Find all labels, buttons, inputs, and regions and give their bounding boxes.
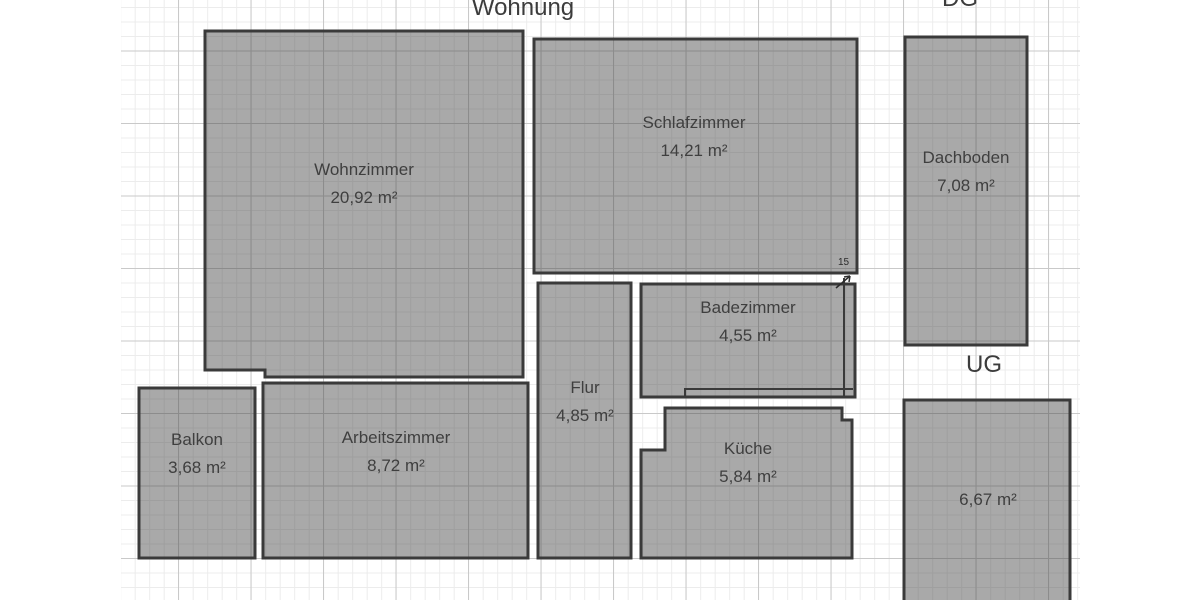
room-label-badezimmer: Badezimmer 4,55 m² — [648, 294, 848, 350]
room-area: 8,72 m² — [296, 452, 496, 480]
floor-title-ug: UG — [934, 352, 1034, 378]
floor-title-wohnung: Wohnung — [423, 0, 623, 21]
room-label-schlafzimmer: Schlafzimmer 14,21 m² — [594, 109, 794, 165]
room-label-ug: 6,67 m² — [918, 486, 1058, 514]
floorplan-stage: Wohnung DG UG Wohnzimmer 20,92 m² Schlaf… — [0, 0, 1200, 600]
room-area: 4,55 m² — [648, 322, 848, 350]
room-name: Wohnzimmer — [264, 156, 464, 184]
room-label-balkon: Balkon 3,68 m² — [137, 426, 257, 482]
room-label-dachboden: Dachboden 7,08 m² — [886, 144, 1046, 200]
room-name: Badezimmer — [648, 294, 848, 322]
room-area: 4,85 m² — [535, 402, 635, 430]
room-name: Flur — [535, 374, 635, 402]
room-label-kueche: Küche 5,84 m² — [648, 435, 848, 491]
room-name: Schlafzimmer — [594, 109, 794, 137]
room-area: 6,67 m² — [918, 486, 1058, 514]
room-area: 5,84 m² — [648, 463, 848, 491]
room-name: Arbeitszimmer — [296, 424, 496, 452]
room-area: 7,08 m² — [886, 172, 1046, 200]
room-area: 20,92 m² — [264, 184, 464, 212]
room-label-wohnzimmer: Wohnzimmer 20,92 m² — [264, 156, 464, 212]
room-area: 14,21 m² — [594, 137, 794, 165]
room-label-flur: Flur 4,85 m² — [535, 374, 635, 430]
room-name: Dachboden — [886, 144, 1046, 172]
room-name: Balkon — [137, 426, 257, 454]
wall-dimension-label: 15 — [838, 258, 849, 268]
floor-title-dg: DG — [910, 0, 1010, 12]
room-label-arbeitszimmer: Arbeitszimmer 8,72 m² — [296, 424, 496, 480]
room-area: 3,68 m² — [137, 454, 257, 482]
room-name: Küche — [648, 435, 848, 463]
